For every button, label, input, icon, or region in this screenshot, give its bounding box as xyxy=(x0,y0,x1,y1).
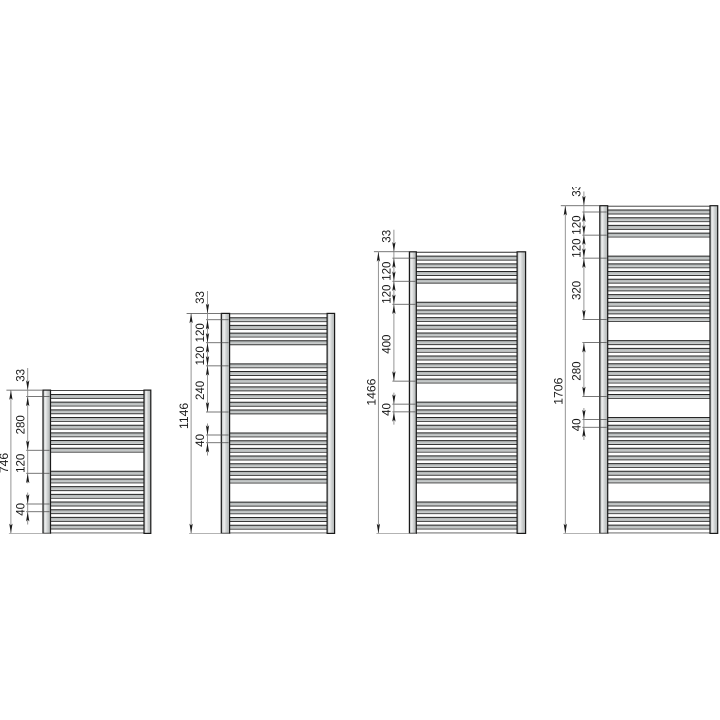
svg-text:280: 280 xyxy=(572,362,584,381)
svg-text:1466: 1466 xyxy=(364,378,378,405)
svg-text:33: 33 xyxy=(195,291,207,304)
svg-text:120: 120 xyxy=(15,454,27,473)
svg-text:33: 33 xyxy=(15,369,27,382)
svg-text:40: 40 xyxy=(572,419,584,432)
svg-text:1146: 1146 xyxy=(177,403,191,429)
svg-text:120: 120 xyxy=(382,262,394,281)
svg-text:280: 280 xyxy=(15,415,27,434)
svg-text:240: 240 xyxy=(195,381,207,400)
svg-text:40: 40 xyxy=(195,434,207,447)
svg-text:120: 120 xyxy=(195,323,207,342)
svg-text:746: 746 xyxy=(0,453,11,474)
svg-text:33: 33 xyxy=(382,230,394,243)
svg-text:120: 120 xyxy=(572,239,584,258)
svg-text:1706: 1706 xyxy=(551,377,565,404)
svg-text:400: 400 xyxy=(382,335,394,354)
svg-text:40: 40 xyxy=(382,403,394,416)
svg-text:40: 40 xyxy=(15,503,27,516)
svg-text:320: 320 xyxy=(572,281,584,300)
svg-text:120: 120 xyxy=(572,216,584,235)
svg-text:120: 120 xyxy=(382,285,394,304)
svg-text:120: 120 xyxy=(195,346,207,365)
